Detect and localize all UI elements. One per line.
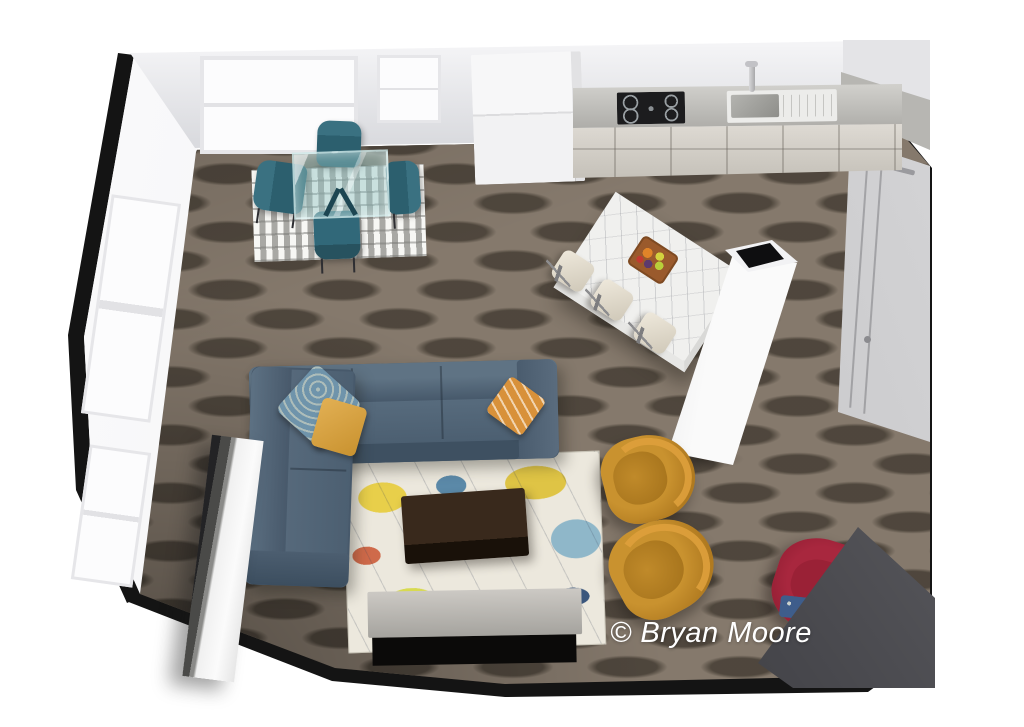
faucet-head <box>745 61 758 67</box>
dining-chair-east <box>385 160 422 215</box>
cooktop <box>617 91 686 124</box>
sink-basin <box>731 94 779 118</box>
console-front <box>372 634 576 666</box>
sofa-bottom-arm <box>244 550 349 588</box>
tall-cabinet <box>471 51 585 185</box>
dining-table <box>292 149 390 219</box>
door-knob <box>864 336 871 343</box>
watermark-credit: © Bryan Moore <box>610 616 812 651</box>
room-render: © Bryan Moore <box>0 0 1024 727</box>
sink-drainboard <box>783 94 833 117</box>
media-console <box>367 588 582 666</box>
table-leg <box>338 188 357 216</box>
console-top <box>367 588 582 638</box>
coffee-table <box>401 488 529 564</box>
faucet <box>749 64 755 92</box>
top-window-small <box>377 55 441 123</box>
kitchen-sink <box>727 89 838 123</box>
armchair-back-rim <box>604 436 694 521</box>
table-leg <box>323 188 341 217</box>
